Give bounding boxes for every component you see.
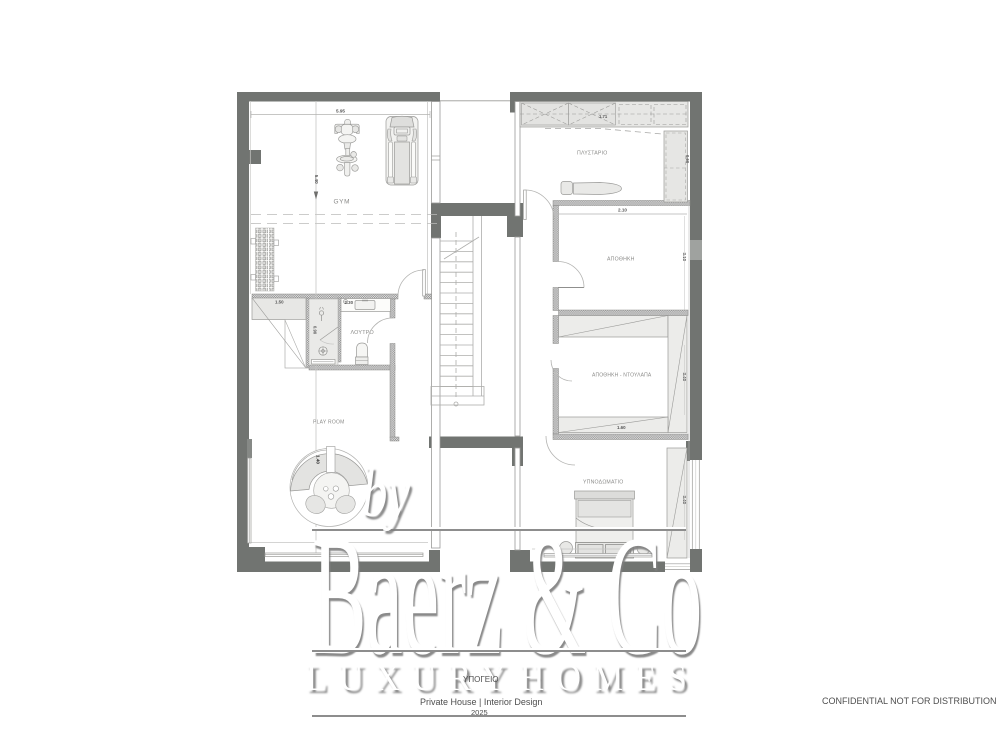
- svg-text:1.60: 1.60: [617, 425, 626, 430]
- svg-text:ΑΠΟΘΗΚΗ: ΑΠΟΘΗΚΗ: [607, 257, 635, 263]
- svg-text:1.50: 1.50: [275, 300, 284, 305]
- svg-text:ΥΠΝΟΔΩΜΑΤΙΟ: ΥΠΝΟΔΩΜΑΤΙΟ: [583, 480, 623, 486]
- svg-text:1.71: 1.71: [599, 114, 608, 119]
- svg-text:2.10: 2.10: [618, 208, 627, 213]
- svg-text:2.30: 2.30: [345, 300, 354, 305]
- svg-text:ΑΠΟΘΗΚΗ - ΝΤΟΥΛΑΠΑ: ΑΠΟΘΗΚΗ - ΝΤΟΥΛΑΠΑ: [592, 373, 652, 379]
- svg-text:ΠΛΥΣΤΑΡΙΟ: ΠΛΥΣΤΑΡΙΟ: [577, 151, 607, 157]
- svg-text:1.40: 1.40: [316, 455, 321, 464]
- svg-text:5.95: 5.95: [336, 109, 345, 114]
- svg-text:PLAY ROOM: PLAY ROOM: [313, 420, 345, 426]
- svg-text:GYM: GYM: [334, 199, 351, 206]
- svg-text:5.40: 5.40: [314, 175, 319, 184]
- svg-text:0.90: 0.90: [313, 326, 318, 335]
- svg-text:0.60: 0.60: [685, 155, 690, 164]
